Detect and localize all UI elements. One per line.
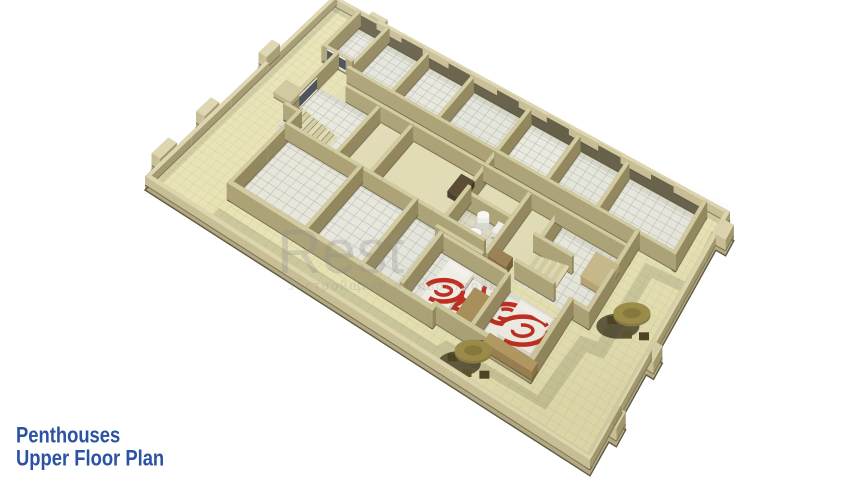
svg-text:застройщики и новостройки: застройщики и новостройки [288, 278, 506, 293]
svg-text:Rest: Rest [277, 218, 404, 287]
